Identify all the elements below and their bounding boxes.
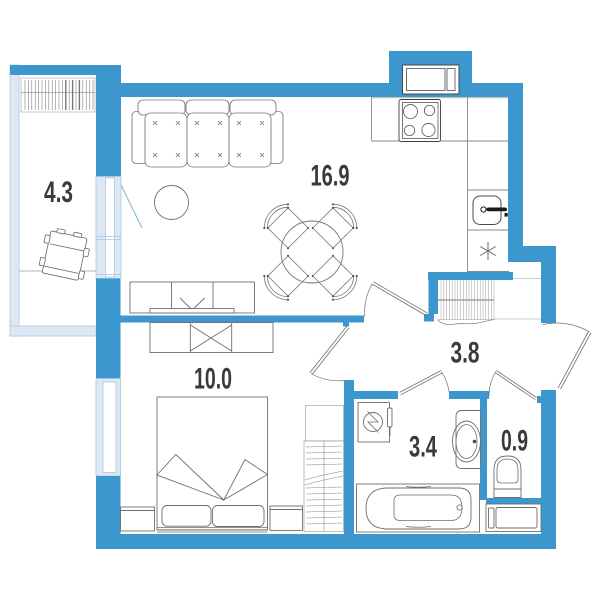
svg-text:3.8: 3.8 — [451, 337, 480, 370]
svg-text:3.4: 3.4 — [409, 431, 437, 464]
svg-text:16.9: 16.9 — [311, 160, 350, 193]
svg-text:0.9: 0.9 — [501, 425, 528, 458]
svg-text:10.0: 10.0 — [194, 363, 232, 396]
svg-text:4.3: 4.3 — [44, 176, 73, 209]
